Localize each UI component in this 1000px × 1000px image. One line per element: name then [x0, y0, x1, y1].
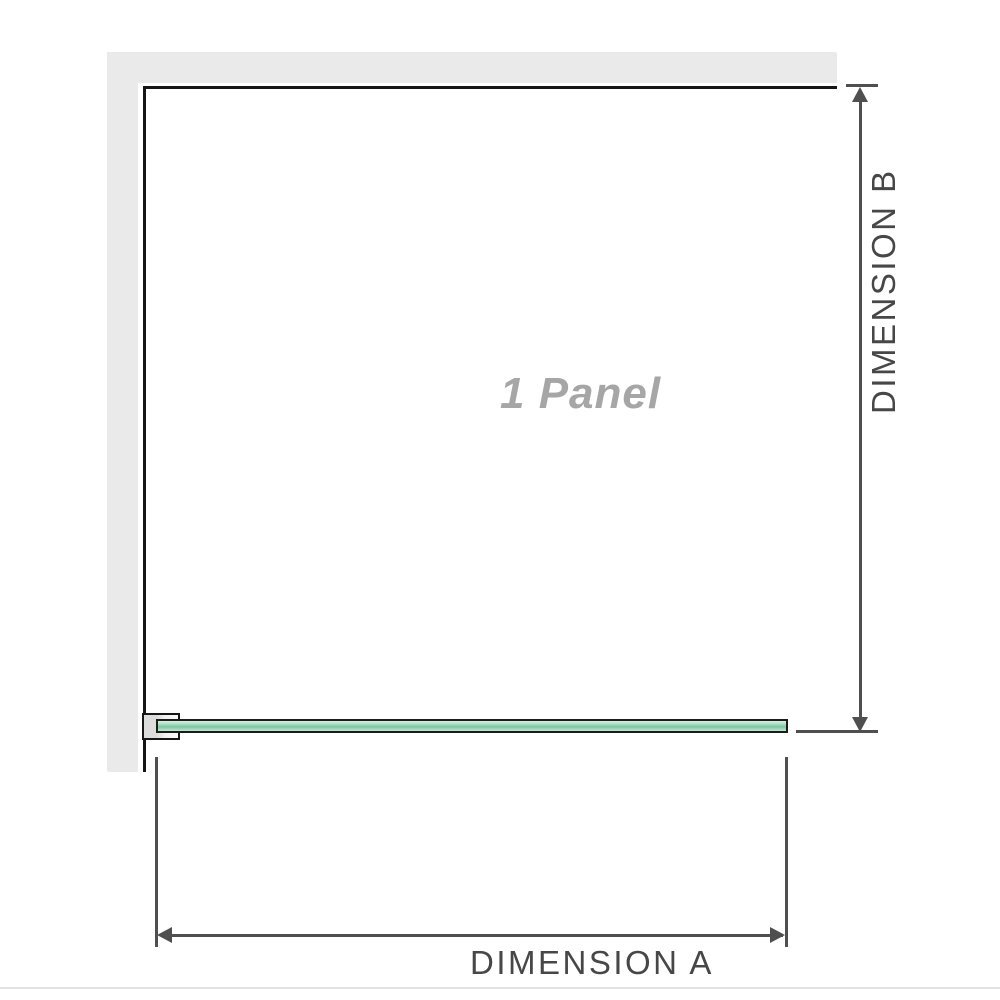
glass-panel	[156, 719, 788, 733]
dimension-a-line	[161, 934, 783, 937]
dimension-a-left-extension-line	[155, 757, 158, 947]
arrowhead-down-icon	[852, 717, 868, 732]
wall-top	[107, 52, 837, 83]
shower-screen-dimension-diagram: 1 Panel DIMENSION B DIMENSION A	[0, 0, 1000, 1000]
dimension-a-right-extension-line	[785, 757, 788, 947]
dimension-b-line	[859, 99, 862, 720]
arrowhead-up-icon	[852, 87, 868, 102]
bottom-divider	[0, 987, 1000, 989]
arrowhead-right-icon	[770, 927, 785, 943]
arrowhead-left-icon	[157, 927, 172, 943]
frame-top-edge	[143, 86, 837, 89]
wall-left	[107, 52, 138, 772]
frame-left-edge	[143, 86, 146, 772]
